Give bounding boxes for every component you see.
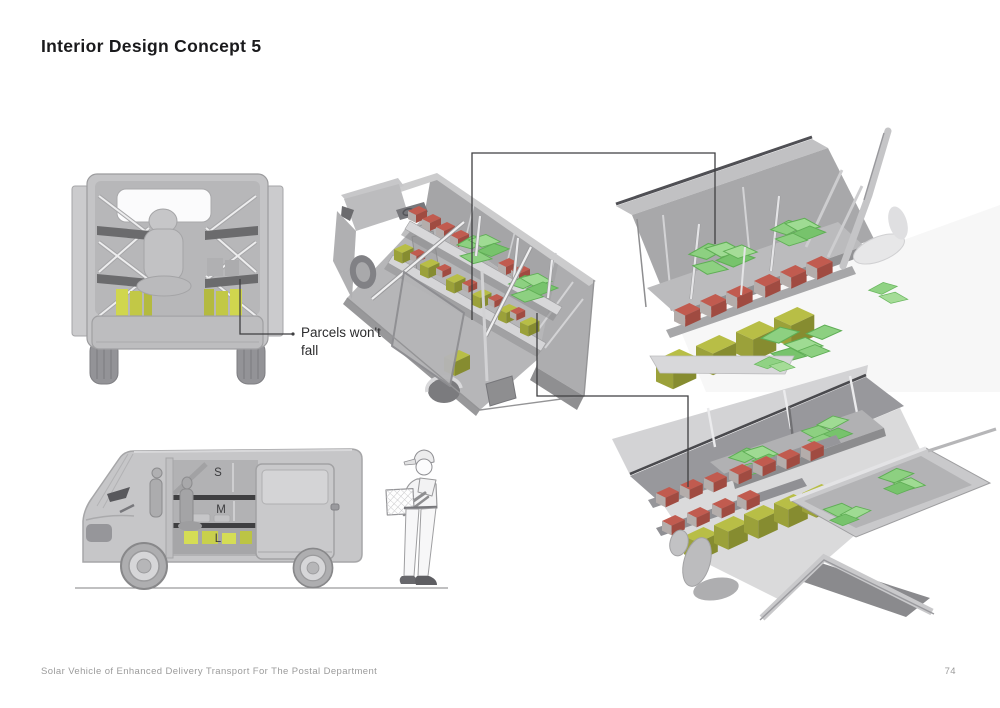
door-window xyxy=(262,470,328,504)
postal-worker-figure xyxy=(386,450,437,585)
size-label-small: S xyxy=(214,467,222,479)
front-wheel xyxy=(121,543,167,589)
yellow-parcels-right xyxy=(204,289,242,316)
rear-wheel xyxy=(293,548,332,587)
shoe xyxy=(400,576,417,584)
shoe xyxy=(415,576,437,585)
leader-dot xyxy=(291,332,294,335)
shelf-detail-upper-figure xyxy=(616,131,1000,392)
concept-artwork: S M L xyxy=(0,0,1000,708)
rear-bumper xyxy=(92,316,263,349)
rear-view-figure xyxy=(72,174,283,384)
parcels-annotation: Parcels won't fall xyxy=(301,324,399,359)
page-footer: Solar Vehicle of Enhanced Delivery Trans… xyxy=(41,666,956,677)
size-label-medium: M xyxy=(216,504,226,516)
cap-brim xyxy=(404,459,416,465)
footer-project-title: Solar Vehicle of Enhanced Delivery Trans… xyxy=(41,666,377,677)
leg xyxy=(404,509,419,576)
windshield-iso xyxy=(344,184,408,231)
head xyxy=(416,459,432,475)
isometric-cutaway-figure xyxy=(333,173,596,416)
b-pillar xyxy=(166,458,173,558)
front-bumper-side xyxy=(86,524,112,542)
footer-page-number: 74 xyxy=(945,666,956,677)
frame-shadow xyxy=(798,562,930,617)
leg xyxy=(418,508,436,576)
slide-page: Interior Design Concept 5 xyxy=(0,0,1000,708)
cab-side xyxy=(333,211,356,299)
sliding-door xyxy=(256,464,339,559)
side-view-figure: S M L xyxy=(83,449,362,589)
door-handle xyxy=(331,504,339,510)
frame-rod xyxy=(928,429,996,451)
size-label-large: L xyxy=(215,533,222,545)
gray-parcel xyxy=(225,260,239,276)
gray-parcel xyxy=(214,515,230,522)
gray-parcel xyxy=(207,258,223,276)
